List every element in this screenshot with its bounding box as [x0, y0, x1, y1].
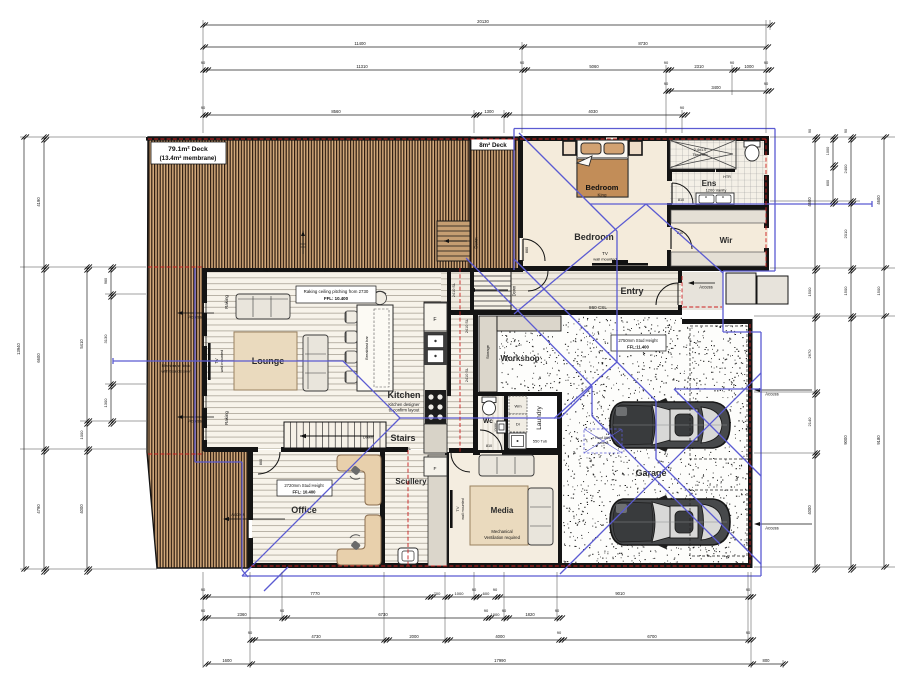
- svg-text:Wm: Wm: [514, 404, 522, 409]
- svg-text:Bedroom: Bedroom: [574, 232, 614, 242]
- svg-text:Access: Access: [765, 526, 779, 531]
- svg-text:90: 90: [746, 587, 751, 592]
- svg-text:860: 860: [525, 247, 529, 253]
- svg-text:90: 90: [555, 608, 560, 613]
- svg-text:HTR: HTR: [723, 175, 731, 179]
- svg-text:FFL: 10.400: FFL: 10.400: [292, 490, 316, 495]
- svg-text:90: 90: [484, 608, 489, 613]
- svg-text:2410 SL: 2410 SL: [465, 319, 469, 333]
- svg-text:11400: 11400: [354, 41, 366, 46]
- svg-text:(13.4m² membrane): (13.4m² membrane): [160, 155, 217, 162]
- svg-text:860: 860: [259, 459, 263, 465]
- svg-text:4000: 4000: [79, 504, 84, 514]
- svg-text:Storage: Storage: [485, 344, 490, 359]
- svg-text:Access: Access: [231, 512, 245, 517]
- svg-text:3400: 3400: [711, 85, 721, 90]
- svg-text:79.1m² Deck: 79.1m² Deck: [168, 146, 208, 153]
- svg-text:2000: 2000: [409, 634, 419, 639]
- svg-text:5410: 5410: [79, 339, 84, 349]
- svg-text:1000: 1000: [826, 147, 830, 155]
- svg-text:11310: 11310: [356, 64, 368, 69]
- svg-text:1000: 1000: [79, 430, 84, 440]
- svg-text:90: 90: [201, 105, 206, 110]
- svg-text:4600: 4600: [876, 195, 881, 205]
- svg-text:shower: shower: [493, 422, 497, 431]
- svg-text:4190: 4190: [36, 197, 41, 207]
- svg-text:Roof Attic: Roof Attic: [595, 436, 611, 440]
- svg-text:2400: 2400: [843, 164, 848, 174]
- svg-text:90: 90: [680, 105, 685, 110]
- svg-text:1000: 1000: [744, 64, 754, 69]
- svg-text:17990: 17990: [494, 658, 506, 663]
- svg-text:4600: 4600: [807, 197, 812, 207]
- svg-text:Raking: Raking: [224, 411, 229, 425]
- svg-text:4790: 4790: [36, 504, 41, 514]
- svg-text:TV: TV: [602, 251, 608, 256]
- svg-text:Stairs: Stairs: [390, 433, 415, 443]
- svg-text:Bedroom: Bedroom: [586, 183, 619, 192]
- svg-text:90: 90: [746, 630, 751, 635]
- svg-text:2410 SL: 2410 SL: [452, 283, 456, 297]
- svg-text:90: 90: [520, 60, 525, 65]
- svg-text:Kitchen: Kitchen: [387, 390, 420, 400]
- svg-text:90: 90: [764, 60, 769, 65]
- svg-text:90: 90: [557, 630, 562, 635]
- svg-text:9180: 9180: [876, 435, 881, 445]
- svg-text:6600: 6600: [36, 353, 41, 363]
- svg-text:Down: Down: [474, 237, 479, 249]
- svg-text:2720mm Stud Height: 2720mm Stud Height: [284, 483, 324, 488]
- svg-text:1600: 1600: [222, 658, 232, 663]
- svg-text:9010: 9010: [615, 591, 625, 596]
- svg-text:90: 90: [502, 608, 507, 613]
- svg-text:810: 810: [678, 198, 684, 202]
- svg-text:8560: 8560: [331, 109, 341, 114]
- svg-text:2310: 2310: [694, 64, 704, 69]
- svg-text:90: 90: [764, 81, 769, 86]
- svg-text:Entry: Entry: [620, 286, 643, 296]
- svg-text:Raking: Raking: [224, 295, 229, 309]
- svg-text:Wc: Wc: [483, 418, 493, 425]
- svg-text:2.4x1.0: 2.4x1.0: [694, 148, 706, 152]
- svg-text:90: 90: [280, 608, 285, 613]
- svg-text:90: 90: [730, 60, 735, 65]
- svg-text:90: 90: [472, 587, 477, 592]
- svg-text:2750mm Stud Height: 2750mm Stud Height: [618, 338, 658, 343]
- svg-text:860 CSL: 860 CSL: [589, 305, 607, 310]
- svg-text:Media: Media: [491, 506, 514, 515]
- svg-text:550 Tub: 550 Tub: [533, 439, 548, 444]
- svg-text:1300: 1300: [103, 398, 108, 408]
- svg-text:3130: 3130: [103, 334, 108, 344]
- svg-text:600: 600: [483, 591, 490, 596]
- svg-text:90: 90: [844, 129, 848, 133]
- svg-text:960: 960: [104, 278, 108, 284]
- svg-text:2360: 2360: [237, 612, 247, 617]
- svg-text:4000: 4000: [495, 634, 505, 639]
- svg-text:2410 SL: 2410 SL: [465, 368, 469, 382]
- svg-text:90: 90: [248, 630, 253, 635]
- svg-text:9000: 9000: [843, 435, 848, 445]
- svg-text:Access: Access: [699, 285, 713, 290]
- svg-text:Scullery: Scullery: [395, 477, 427, 486]
- svg-text:1500: 1500: [807, 287, 812, 297]
- svg-text:1000: 1000: [491, 612, 501, 617]
- svg-text:Tiled Rm: Tiled Rm: [692, 153, 707, 157]
- svg-text:Wir: Wir: [720, 236, 733, 245]
- svg-text:TV: TV: [455, 506, 460, 511]
- svg-text:Raking ceiling pitching from 2: Raking ceiling pitching from 2730: [304, 289, 369, 294]
- svg-text:800: 800: [763, 658, 771, 663]
- svg-text:F: F: [434, 466, 437, 472]
- svg-text:access: access: [597, 441, 608, 445]
- svg-text:Down: Down: [512, 285, 517, 296]
- svg-text:20130: 20130: [477, 19, 489, 24]
- svg-text:Membrane deck: Membrane deck: [162, 363, 191, 368]
- svg-text:4000: 4000: [807, 505, 812, 515]
- svg-text:13940: 13940: [16, 343, 21, 355]
- svg-text:7770: 7770: [310, 591, 320, 596]
- svg-text:6700: 6700: [647, 634, 657, 639]
- svg-text:Workshop: Workshop: [501, 354, 540, 363]
- svg-text:90: 90: [664, 81, 669, 86]
- svg-text:90: 90: [493, 587, 498, 592]
- svg-text:90: 90: [664, 60, 669, 65]
- svg-text:Down: Down: [363, 435, 373, 440]
- svg-text:6730: 6730: [378, 612, 388, 617]
- svg-text:Ens: Ens: [702, 179, 717, 188]
- svg-text:1300: 1300: [484, 109, 494, 114]
- svg-text:90: 90: [201, 60, 206, 65]
- svg-text:2140: 2140: [807, 417, 812, 427]
- svg-text:FFL:11.400: FFL:11.400: [627, 345, 649, 350]
- svg-text:F: F: [433, 317, 436, 323]
- svg-text:Kitchen designer: Kitchen designer: [388, 402, 420, 407]
- svg-text:with boards over: with boards over: [161, 369, 191, 374]
- svg-text:910 CSL: 910 CSL: [393, 446, 411, 451]
- svg-text:wall mounted: wall mounted: [593, 257, 617, 262]
- svg-text:Ventilation required: Ventilation required: [484, 535, 521, 540]
- svg-text:1200 Vanity: 1200 Vanity: [706, 188, 727, 193]
- svg-text:Dr: Dr: [516, 422, 521, 427]
- svg-text:King: King: [597, 193, 607, 198]
- svg-text:FFL: 10.400: FFL: 10.400: [324, 296, 349, 301]
- svg-text:Mechanical: Mechanical: [491, 529, 512, 534]
- svg-text:1820: 1820: [525, 612, 535, 617]
- svg-text:2010: 2010: [843, 229, 848, 239]
- svg-text:Breakfast bar: Breakfast bar: [364, 335, 369, 359]
- svg-text:2670: 2670: [807, 349, 812, 359]
- svg-text:700: 700: [434, 591, 441, 596]
- svg-text:600: 600: [826, 180, 830, 186]
- svg-text:4730: 4730: [311, 634, 321, 639]
- svg-text:5060: 5060: [589, 64, 599, 69]
- svg-text:810: 810: [486, 444, 492, 448]
- svg-text:4030: 4030: [588, 109, 598, 114]
- svg-text:1500: 1500: [843, 286, 848, 296]
- svg-text:1500: 1500: [876, 286, 881, 296]
- svg-text:wall mounted: wall mounted: [461, 498, 465, 519]
- svg-text:90: 90: [201, 608, 206, 613]
- svg-text:8m² Deck: 8m² Deck: [479, 142, 507, 149]
- svg-text:90: 90: [201, 587, 206, 592]
- svg-text:8730: 8730: [638, 41, 648, 46]
- svg-text:1000: 1000: [455, 591, 465, 596]
- svg-text:90: 90: [808, 129, 812, 133]
